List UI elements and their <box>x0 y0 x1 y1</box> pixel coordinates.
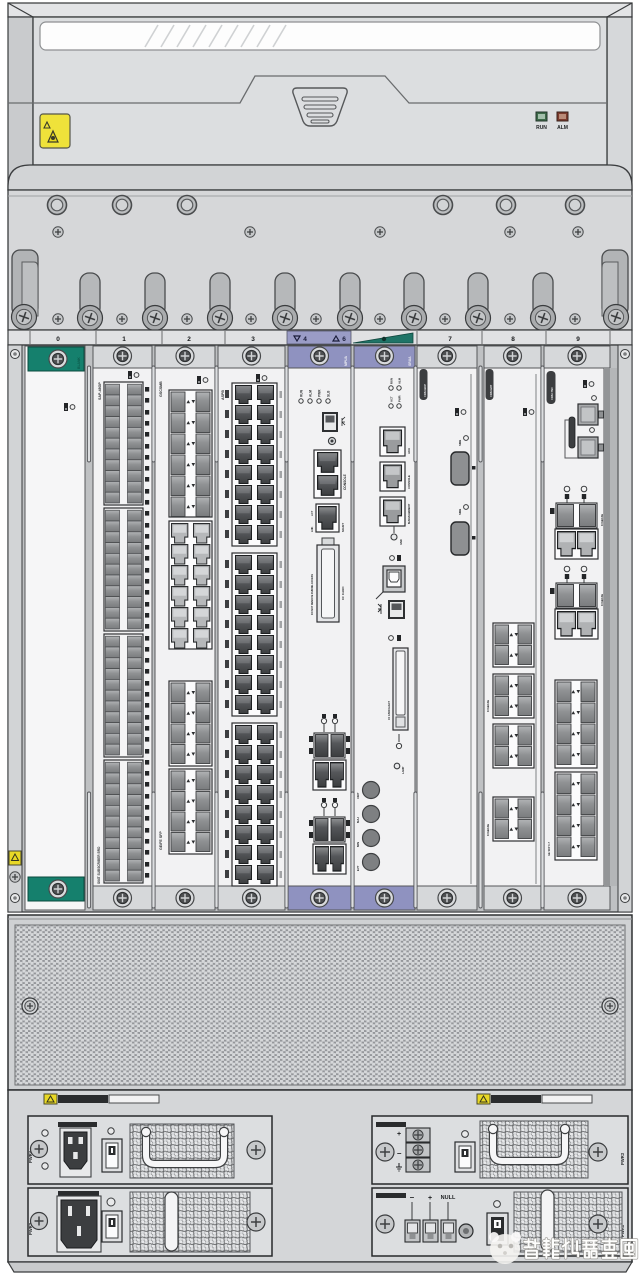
svg-text:3: 3 <box>251 336 255 343</box>
svg-text:PWR: PWR <box>398 395 402 402</box>
svg-text:+: + <box>397 1131 401 1138</box>
svg-text:GND: GND <box>399 539 403 545</box>
svg-text:MIN: MIN <box>356 842 360 847</box>
svg-text:MANAGEMENT: MANAGEMENT <box>407 503 411 524</box>
svg-text:LAMP: LAMP <box>401 766 405 774</box>
svg-text:NULL: NULL <box>441 1195 456 1201</box>
svg-text:CONSOLE: CONSOLE <box>407 475 411 489</box>
svg-text:S64T SUBSCRIBER BRD: S64T SUBSCRIBER BRD <box>97 846 101 884</box>
svg-text:PWR: PWR <box>318 389 322 397</box>
svg-text:DO NOT REMOVE DURING ACCESS: DO NOT REMOVE DURING ACCESS <box>311 574 314 615</box>
svg-text:CR52-BKP: CR52-BKP <box>423 384 427 397</box>
svg-text:GE/FE SFP: GE/FE SFP <box>159 831 163 850</box>
svg-text:AUX: AUX <box>407 448 411 454</box>
svg-text:EVT: EVT <box>356 865 360 871</box>
svg-text:9: 9 <box>576 336 580 343</box>
svg-text:ALM: ALM <box>557 125 568 131</box>
svg-text:1: 1 <box>122 336 126 343</box>
svg-text:RUN: RUN <box>300 389 304 397</box>
svg-text:6: 6 <box>342 336 346 343</box>
svg-text:ACT: ACT <box>310 510 314 516</box>
svg-text:CF CARD: CF CARD <box>341 586 345 600</box>
svg-text:ACT: ACT <box>390 396 394 402</box>
svg-text:7: 7 <box>448 336 452 343</box>
svg-text:SLB: SLB <box>327 390 331 397</box>
svg-text:–: – <box>397 1149 402 1158</box>
svg-text:BLANK: BLANK <box>77 357 81 369</box>
svg-text:CONSOLE: CONSOLE <box>343 474 347 490</box>
svg-text:RUN: RUN <box>390 378 394 384</box>
svg-text:GE SFP 0-7: GE SFP 0-7 <box>547 842 551 856</box>
svg-text:MPUA: MPUA <box>344 355 348 366</box>
svg-text:–: – <box>410 1193 415 1202</box>
svg-text:ALM: ALM <box>398 377 402 384</box>
svg-text:LNK: LNK <box>310 527 314 532</box>
svg-text:CF CARD EJECT: CF CARD EJECT <box>388 700 391 720</box>
svg-text:10GBASE: 10GBASE <box>600 594 604 606</box>
svg-text:GSCSMB: GSCSMB <box>159 381 163 397</box>
svg-text:SMB: SMB <box>458 440 462 446</box>
svg-text:+: + <box>428 1195 432 1202</box>
svg-text:CR52-TNC: CR52-TNC <box>550 387 554 400</box>
svg-text:0: 0 <box>56 336 60 343</box>
svg-text:ALM: ALM <box>309 390 313 397</box>
svg-text:SRUA: SRUA <box>408 356 412 366</box>
svg-text:RUN: RUN <box>536 125 547 131</box>
svg-text:SMB: SMB <box>458 509 462 515</box>
svg-text:MGMT: MGMT <box>341 523 345 532</box>
svg-text:CR52-E8T: CR52-E8T <box>489 384 493 397</box>
svg-text:4: 4 <box>303 336 307 343</box>
svg-text:10GBASE: 10GBASE <box>600 514 604 526</box>
svg-text:CRIT: CRIT <box>356 792 360 799</box>
svg-text:ASPB: ASPB <box>221 390 225 400</box>
svg-text:10GBASE: 10GBASE <box>486 700 490 712</box>
svg-text:SAP-48GP: SAP-48GP <box>98 382 102 400</box>
svg-text:MAJ: MAJ <box>356 817 360 823</box>
svg-text:10GBASE: 10GBASE <box>486 824 490 836</box>
svg-text:8: 8 <box>511 336 515 343</box>
svg-text:2: 2 <box>187 336 191 343</box>
svg-text:PWR3: PWR3 <box>620 1152 625 1165</box>
